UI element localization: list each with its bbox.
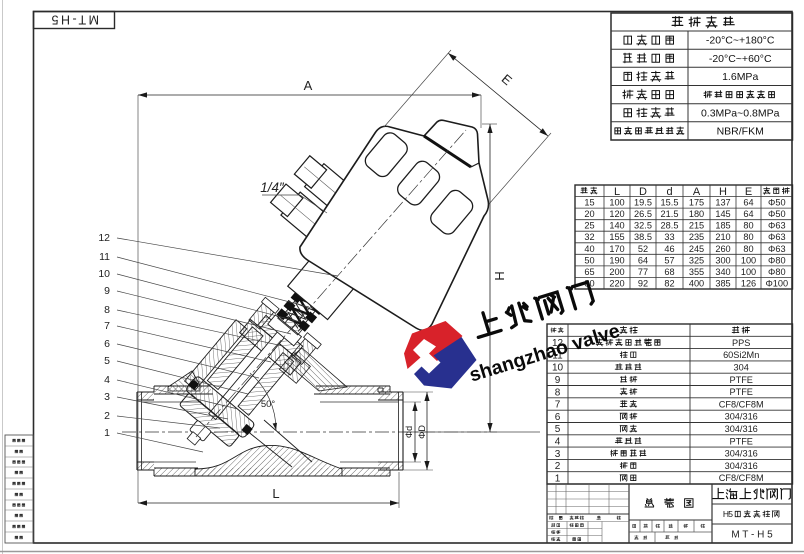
svg-text:-20°C~+180°C: -20°C~+180°C (706, 35, 775, 47)
svg-text:52: 52 (638, 244, 648, 254)
svg-text:5: 5 (555, 424, 561, 435)
svg-text:92: 92 (638, 278, 648, 288)
svg-text:2: 2 (555, 461, 561, 472)
svg-text:32: 32 (584, 232, 594, 242)
svg-text:200: 200 (609, 267, 624, 277)
svg-text:64: 64 (743, 209, 753, 219)
svg-text:6: 6 (555, 412, 561, 423)
svg-text:PTFE: PTFE (729, 387, 752, 397)
svg-text:CF8/CF8M: CF8/CF8M (719, 473, 764, 483)
svg-text:304/316: 304/316 (725, 449, 758, 459)
svg-text:385: 385 (715, 278, 730, 288)
svg-text:PPS: PPS (732, 338, 750, 348)
svg-text:10: 10 (552, 363, 564, 374)
svg-text:7: 7 (104, 320, 110, 332)
svg-text:100: 100 (609, 198, 624, 208)
svg-text:185: 185 (715, 221, 730, 231)
svg-text:11: 11 (99, 251, 110, 263)
svg-text:PTFE: PTFE (729, 436, 752, 446)
svg-text:260: 260 (715, 244, 730, 254)
svg-text:0.3MPa~0.8MPa: 0.3MPa~0.8MPa (701, 107, 780, 119)
svg-text:140: 140 (609, 221, 624, 231)
svg-text:33: 33 (664, 232, 674, 242)
svg-text:H: H (719, 186, 727, 198)
svg-text:M T - H 5: M T - H 5 (731, 530, 773, 541)
svg-text:1.6MPa: 1.6MPa (722, 71, 758, 83)
svg-text:10: 10 (98, 268, 110, 280)
svg-text:40: 40 (584, 244, 594, 254)
svg-text:9: 9 (555, 375, 561, 386)
svg-text:5: 5 (728, 509, 733, 519)
svg-text:3: 3 (104, 391, 110, 403)
svg-text:38.5: 38.5 (634, 232, 652, 242)
svg-text:57: 57 (664, 255, 674, 265)
svg-text:340: 340 (715, 267, 730, 277)
svg-text:175: 175 (689, 198, 704, 208)
svg-text:65: 65 (584, 267, 594, 277)
svg-text:2: 2 (104, 410, 110, 422)
svg-text:-20°C~+60°C: -20°C~+60°C (709, 53, 772, 65)
svg-text:3: 3 (555, 449, 561, 460)
svg-text:L: L (272, 486, 279, 501)
svg-text:E: E (745, 186, 752, 198)
svg-text:PTFE: PTFE (729, 375, 752, 385)
svg-text:d: d (666, 186, 672, 198)
svg-text:Φd: Φd (404, 426, 414, 438)
svg-text:60Si2Mn: 60Si2Mn (723, 350, 759, 360)
svg-text:5: 5 (104, 355, 110, 367)
svg-text:80: 80 (743, 232, 753, 242)
svg-text:8: 8 (555, 387, 561, 398)
svg-text:64: 64 (638, 255, 648, 265)
svg-text:6: 6 (104, 338, 110, 350)
svg-text:NBR/FKM: NBR/FKM (717, 126, 764, 138)
svg-text:100: 100 (741, 267, 756, 277)
svg-text:190: 190 (609, 255, 624, 265)
svg-text:400: 400 (689, 278, 704, 288)
svg-text:304/316: 304/316 (725, 412, 758, 422)
svg-text:4: 4 (555, 437, 561, 448)
svg-text:Φ50: Φ50 (768, 209, 786, 219)
svg-text:220: 220 (609, 278, 624, 288)
svg-text:120: 120 (609, 209, 624, 219)
svg-text:210: 210 (715, 232, 730, 242)
svg-text:Φ80: Φ80 (768, 267, 786, 277)
svg-text:Φ80: Φ80 (768, 255, 786, 265)
svg-text:19.5: 19.5 (634, 198, 652, 208)
svg-text:8: 8 (104, 304, 110, 316)
svg-text:77: 77 (638, 267, 648, 277)
svg-text:4: 4 (104, 374, 110, 386)
svg-text:50: 50 (584, 255, 594, 265)
svg-text:235: 235 (689, 232, 704, 242)
svg-text:1/4″: 1/4″ (260, 180, 285, 195)
svg-text:12: 12 (98, 232, 110, 244)
svg-text:100: 100 (741, 255, 756, 265)
svg-text:15: 15 (584, 198, 594, 208)
svg-text:1: 1 (104, 427, 110, 439)
svg-text:304: 304 (734, 363, 749, 373)
svg-text:215: 215 (689, 221, 704, 231)
svg-text:CF8/CF8M: CF8/CF8M (719, 399, 764, 409)
svg-text:304/316: 304/316 (725, 424, 758, 434)
svg-text:D: D (639, 186, 647, 198)
svg-text:46: 46 (664, 244, 674, 254)
svg-text:82: 82 (664, 278, 674, 288)
svg-text:H: H (492, 271, 507, 280)
svg-text:80: 80 (743, 221, 753, 231)
svg-text:9: 9 (104, 285, 110, 297)
svg-text:1: 1 (555, 473, 561, 484)
svg-text:80: 80 (743, 244, 753, 254)
svg-text:325: 325 (689, 255, 704, 265)
svg-text:L: L (614, 186, 620, 198)
svg-text:355: 355 (689, 267, 704, 277)
svg-text:Φ63: Φ63 (768, 221, 786, 231)
svg-text:Φ63: Φ63 (768, 232, 786, 242)
svg-text:126: 126 (741, 278, 756, 288)
svg-text:Φ63: Φ63 (768, 244, 786, 254)
svg-text:20: 20 (584, 209, 594, 219)
svg-text:7: 7 (555, 400, 561, 411)
svg-text:A: A (693, 186, 701, 198)
svg-text:26.5: 26.5 (634, 209, 652, 219)
svg-text:A: A (304, 78, 313, 93)
svg-text:MT-H5: MT-H5 (49, 13, 99, 27)
svg-text:Φ50: Φ50 (768, 198, 786, 208)
svg-text:64: 64 (743, 198, 753, 208)
svg-text:25: 25 (584, 221, 594, 231)
svg-text:ΦD: ΦD (417, 425, 427, 439)
svg-text:245: 245 (689, 244, 704, 254)
svg-text:28.5: 28.5 (661, 221, 679, 231)
svg-text:68: 68 (664, 267, 674, 277)
svg-text:145: 145 (715, 209, 730, 219)
svg-text:50°: 50° (261, 399, 276, 410)
svg-text:300: 300 (715, 255, 730, 265)
svg-text:Φ100: Φ100 (765, 278, 788, 288)
svg-text:32.5: 32.5 (634, 221, 652, 231)
svg-text:15.5: 15.5 (661, 198, 679, 208)
svg-text:180: 180 (689, 209, 704, 219)
svg-text:21.5: 21.5 (661, 209, 679, 219)
svg-text:170: 170 (609, 244, 624, 254)
svg-text:137: 137 (715, 198, 730, 208)
svg-text:304/316: 304/316 (725, 461, 758, 471)
svg-text:155: 155 (609, 232, 624, 242)
